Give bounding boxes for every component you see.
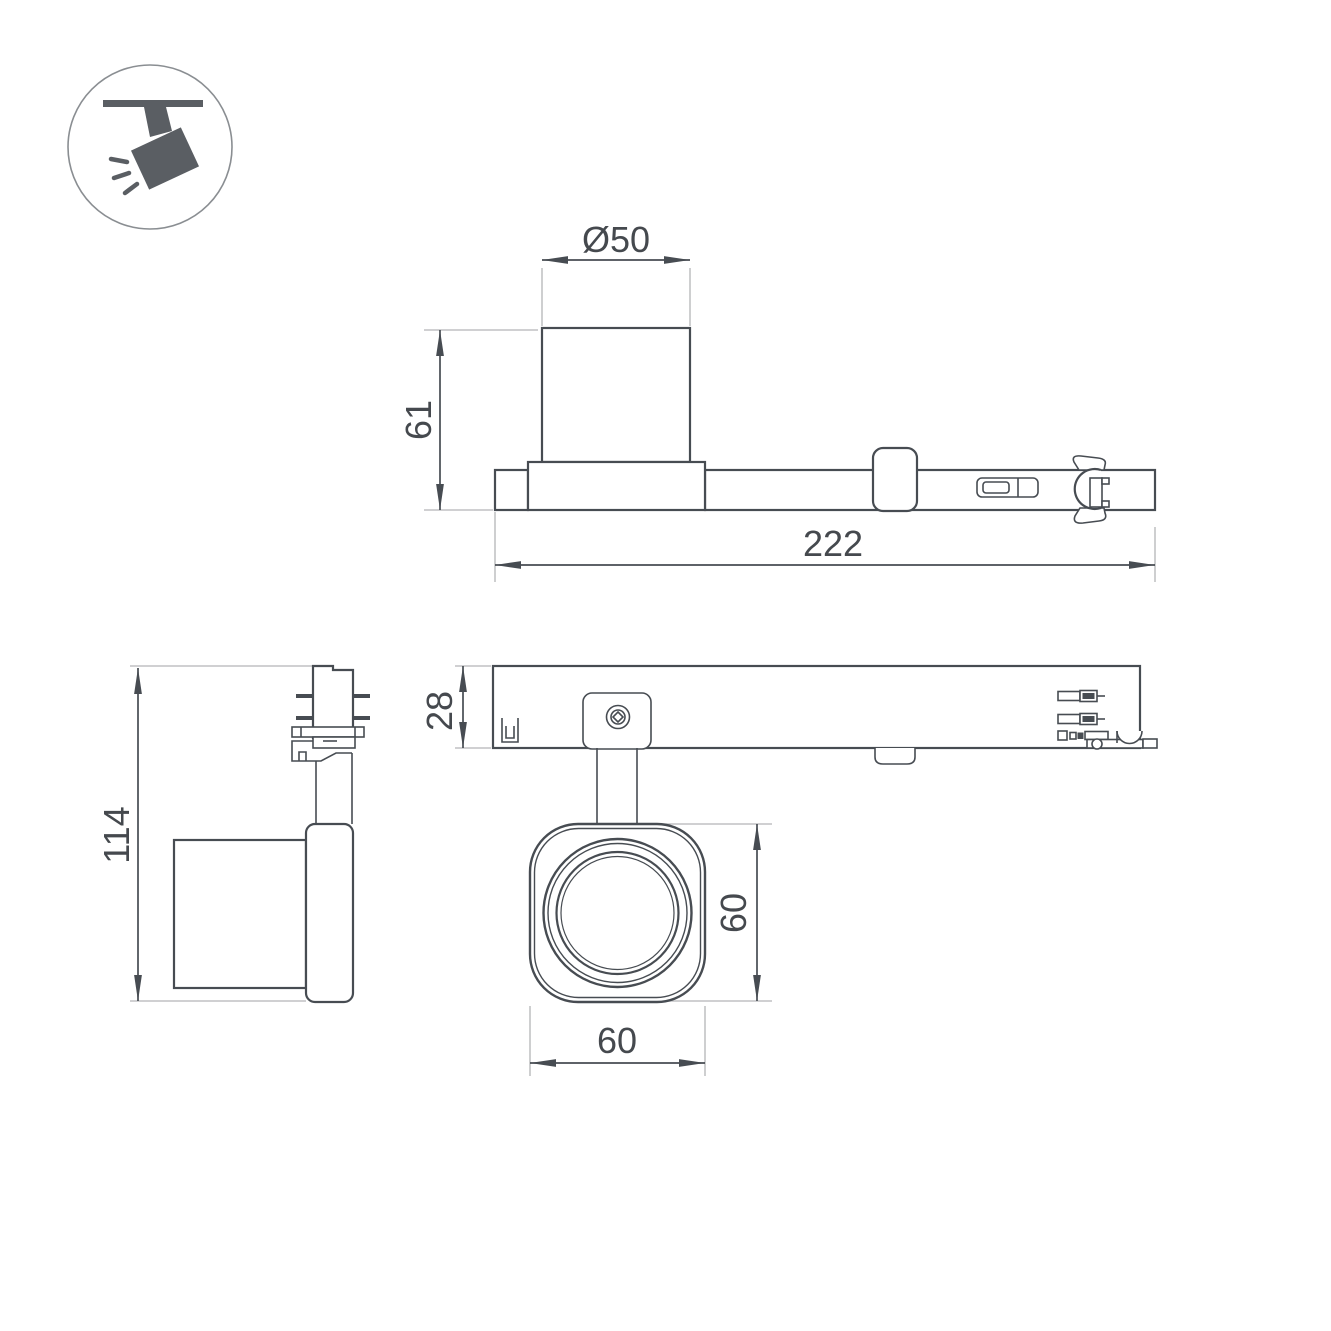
dim-overall-height: 114 [96, 668, 138, 1001]
dimension-label: 222 [803, 523, 863, 564]
track-light-dimension-drawing: Ø50 61 222 [0, 0, 1331, 1331]
stem-from-below [597, 748, 637, 824]
dim-head-height: 61 [398, 330, 440, 510]
dim-track-body-height: 28 [419, 666, 463, 748]
mount-type-icon [68, 65, 232, 229]
stem-side [316, 753, 352, 824]
side-elevation-view: Ø50 61 222 [398, 219, 1155, 582]
dimension-label: 60 [713, 893, 754, 933]
lock-knob [873, 448, 917, 511]
extension-lines [424, 268, 1155, 582]
dimension-label: 28 [419, 691, 460, 731]
icon-ceiling-track-bar [103, 100, 203, 107]
dim-total-length: 222 [495, 523, 1155, 565]
dim-head-diameter: Ø50 [542, 219, 690, 260]
dimension-label: 114 [96, 806, 137, 863]
power-switch [977, 478, 1038, 497]
lamp-bezel-side [306, 824, 353, 1002]
extension-lines [455, 666, 491, 748]
adapter-base [528, 462, 705, 510]
dim-head-outer-height: 60 [713, 824, 757, 1001]
dimension-label: 61 [398, 400, 439, 440]
bottom-track-view: 28 [419, 666, 1157, 824]
lock-knob-below [875, 748, 915, 764]
front-lens-view: 60 60 [530, 824, 772, 1076]
connector-flange [292, 727, 364, 748]
stem-mount-plate [583, 693, 651, 749]
track-rail-left-end [495, 470, 528, 510]
lamp-body-side [174, 840, 306, 988]
lens-outer [557, 852, 679, 974]
dimension-label: Ø50 [582, 219, 650, 260]
end-elevation-view: 114 [96, 666, 370, 1002]
dimension-label: 60 [597, 1020, 637, 1061]
dim-head-outer-width: 60 [530, 1020, 705, 1063]
lamp-head-side [542, 328, 690, 462]
technical-drawing-page: Ø50 61 222 [0, 0, 1331, 1331]
